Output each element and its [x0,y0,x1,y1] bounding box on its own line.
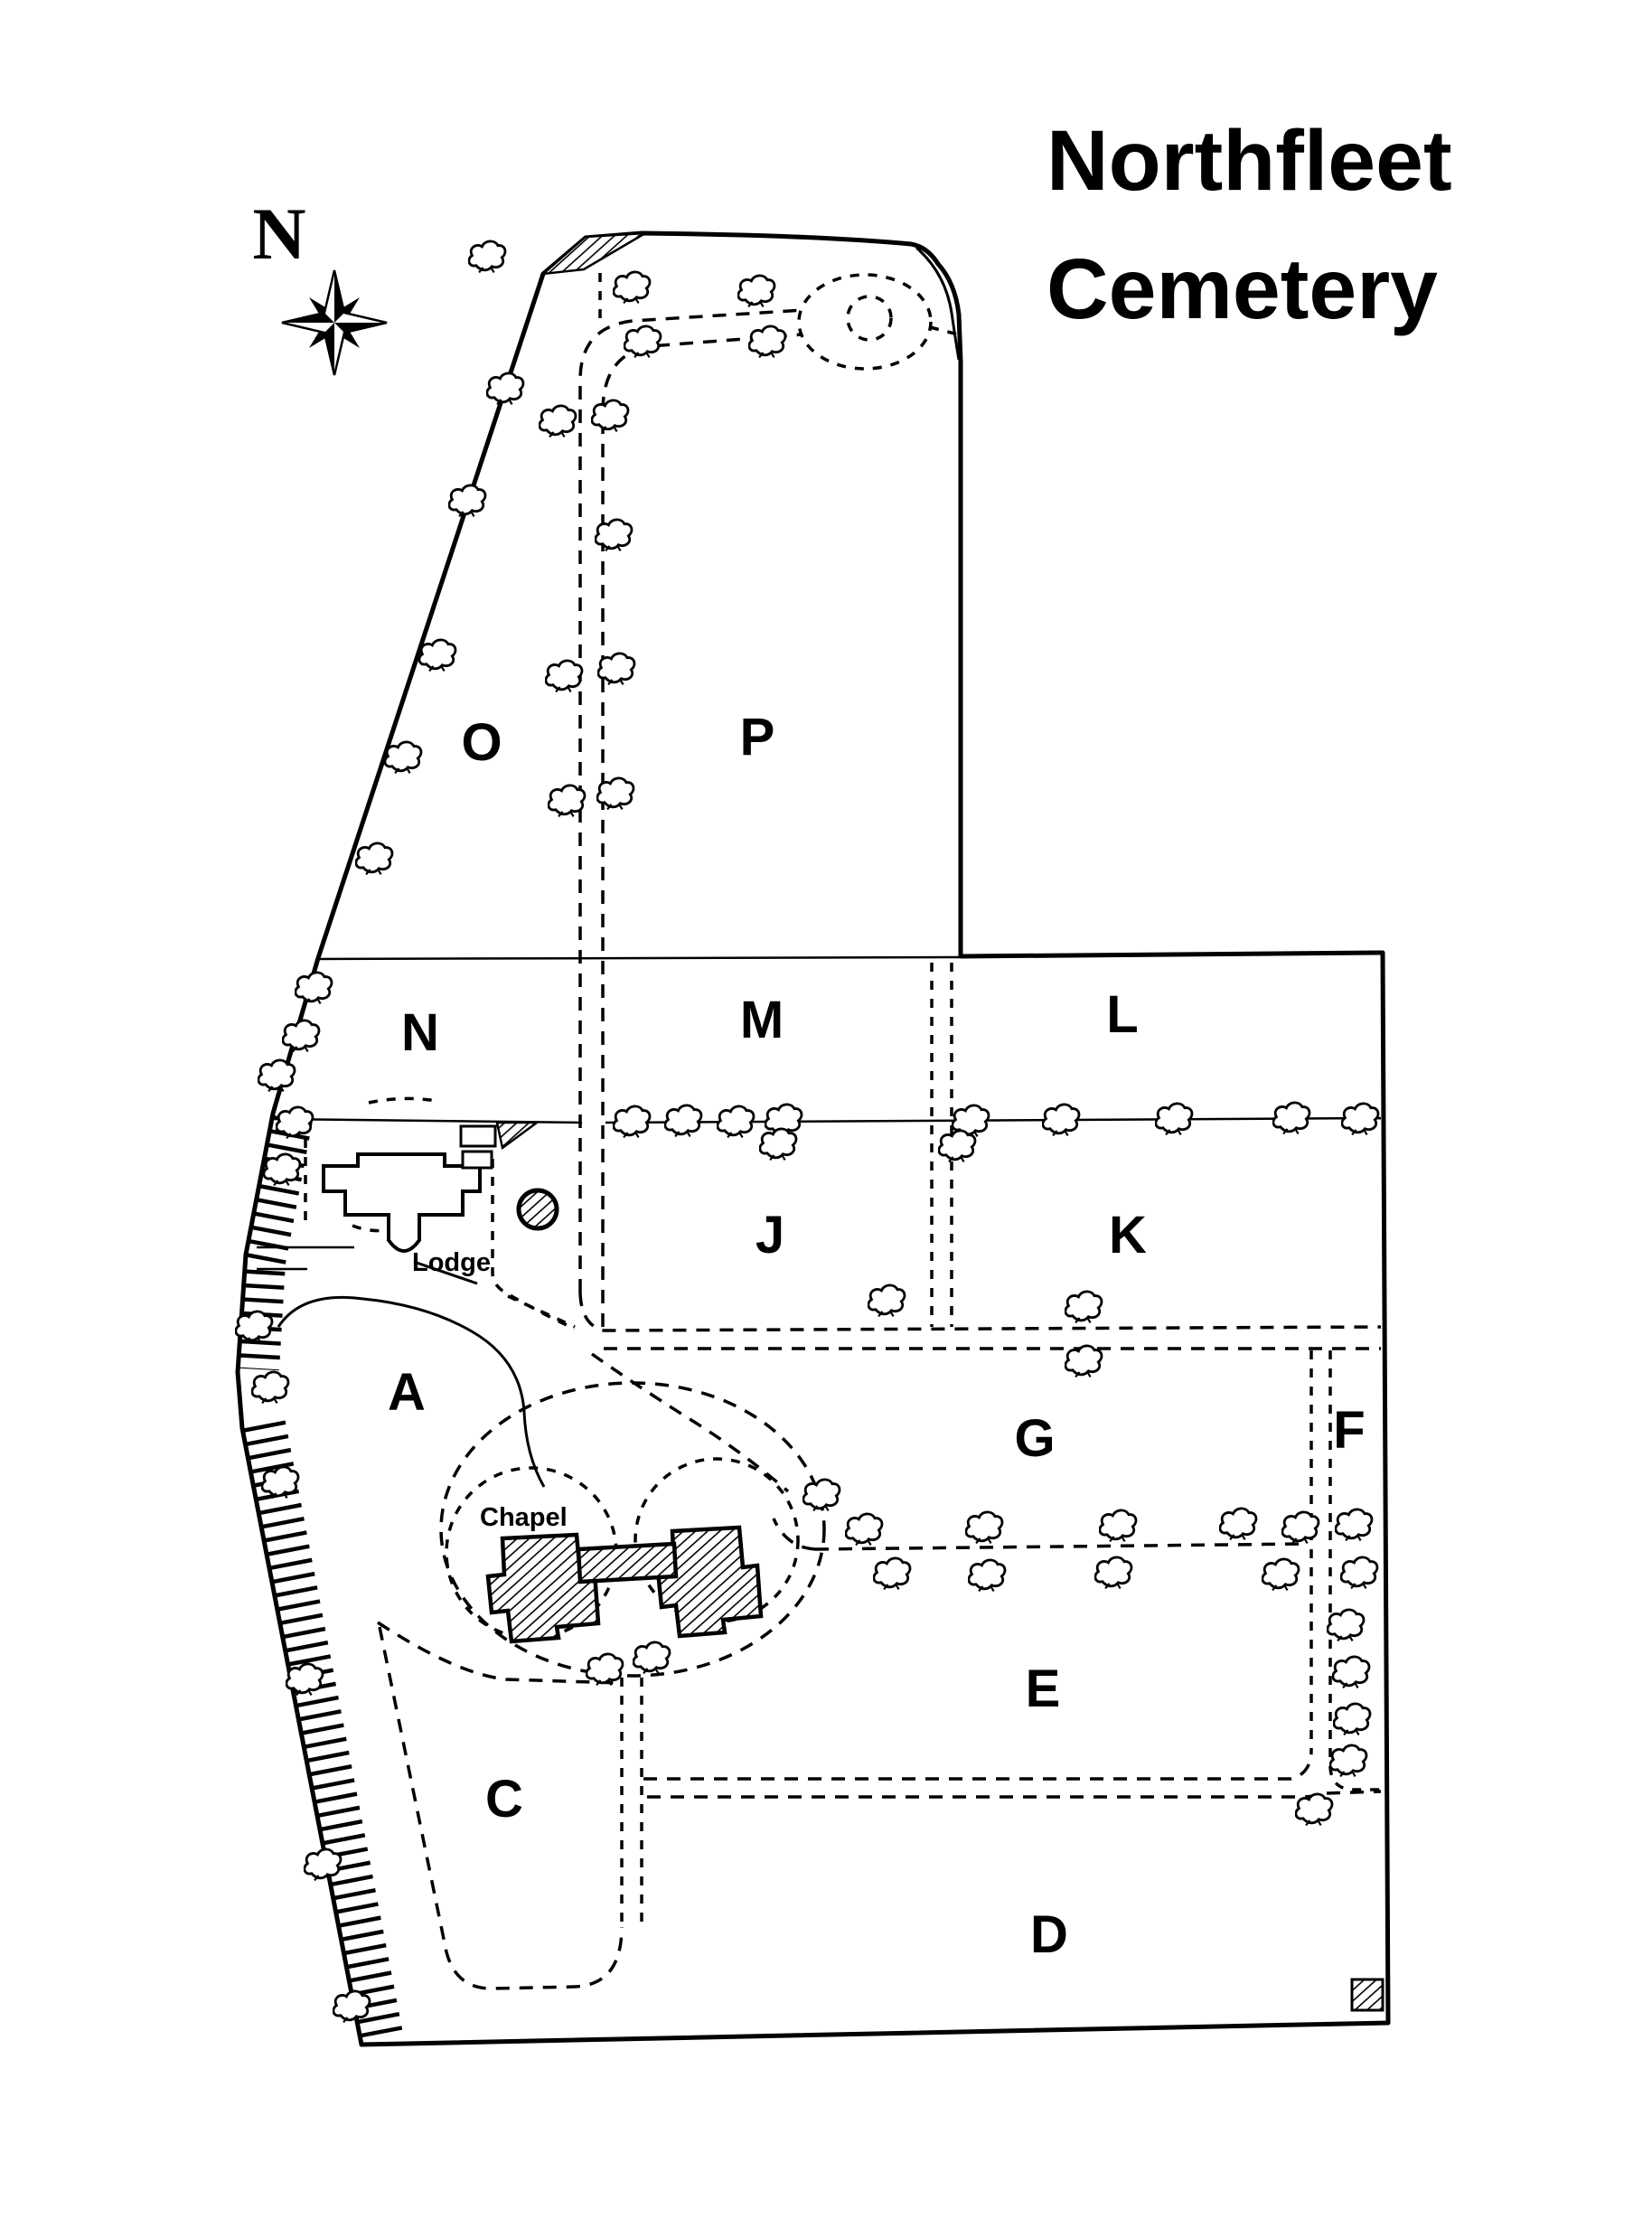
title-line-1: Northfleet [1047,113,1452,209]
chapel-link-corridor [578,1544,676,1582]
section-label-l: L [1106,985,1138,1044]
lodge-outbuilding [461,1126,495,1146]
section-label-e: E [1026,1660,1061,1718]
bottom-right-structure [1352,1979,1383,2010]
section-label-k: K [1109,1206,1147,1265]
section-label-n: N [401,1003,439,1062]
lodge-pond [519,1190,557,1228]
section-label-m: M [740,991,784,1049]
section-label-a: A [388,1363,426,1422]
lodge-outbuilding [463,1152,492,1168]
title-line-2: Cemetery [1047,241,1438,337]
section-label-j: J [756,1206,784,1265]
section-label-o: O [461,713,502,772]
section-label-c: C [485,1770,523,1829]
compass-north-label: N [252,193,305,275]
section-label-f: F [1333,1401,1365,1460]
section-label-g: G [1014,1409,1055,1468]
chapel-label: Chapel [480,1503,568,1532]
cemetery-map: Northfleet Cemetery N [0,0,1652,2219]
section-label-p: P [740,708,775,766]
section-label-d: D [1030,1905,1068,1964]
lodge-label: Lodge [412,1248,491,1277]
